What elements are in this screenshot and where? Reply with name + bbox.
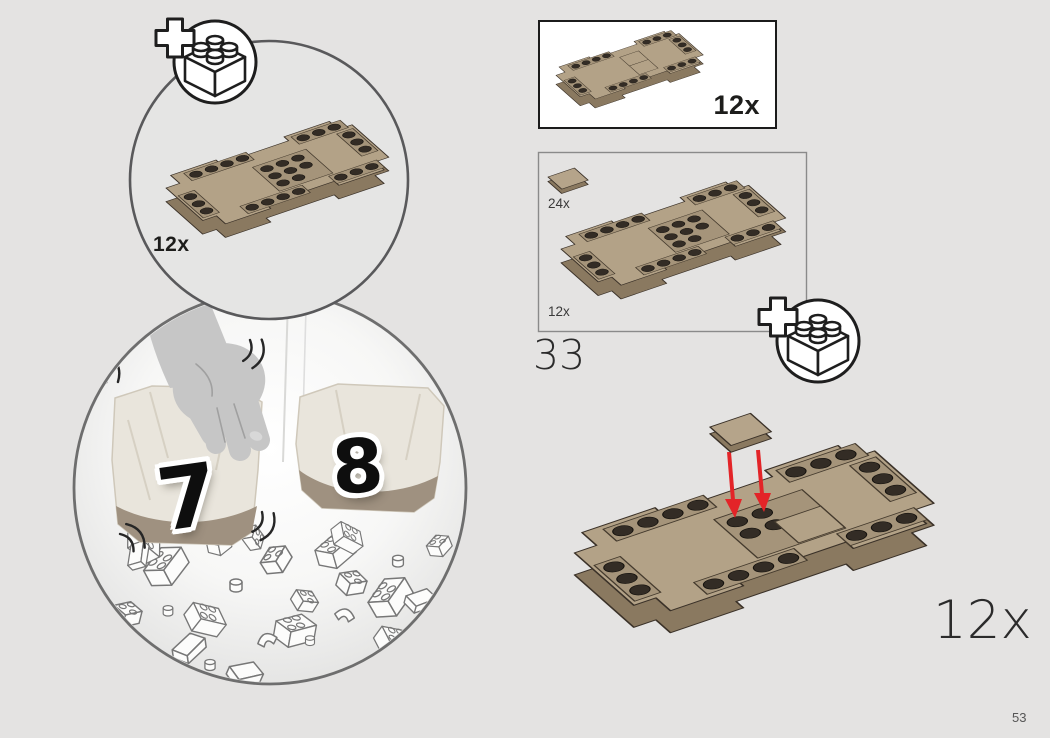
top-bubble — [130, 19, 408, 319]
step-number: 33 — [533, 335, 585, 376]
instruction-page: 12x 12x 24x 12x 33 12x 7 8 53 — [0, 0, 1050, 746]
tile-illustration-step — [548, 168, 588, 194]
step-plate-quantity-label: 12x — [548, 305, 570, 319]
page-footer-strip — [0, 738, 1050, 746]
parts-callout-quantity-label: 12x — [700, 92, 760, 119]
step-box — [539, 153, 860, 383]
illustration-layer — [0, 0, 1050, 746]
tile-illustration-assembly — [710, 413, 771, 452]
top-bubble-quantity-label: 12x — [153, 234, 190, 255]
assembly-illustration — [560, 413, 948, 640]
plate-illustration-assembly — [560, 438, 948, 640]
assembly-quantity-label: 12x — [933, 594, 1032, 647]
plus-brick-icon — [759, 298, 859, 382]
bag-bubble — [74, 285, 466, 695]
step-tile-quantity-label: 24x — [548, 197, 570, 211]
page-number: 53 — [1012, 711, 1026, 724]
plate-illustration-step — [552, 177, 795, 303]
bag-8-number: 8 — [330, 423, 386, 512]
